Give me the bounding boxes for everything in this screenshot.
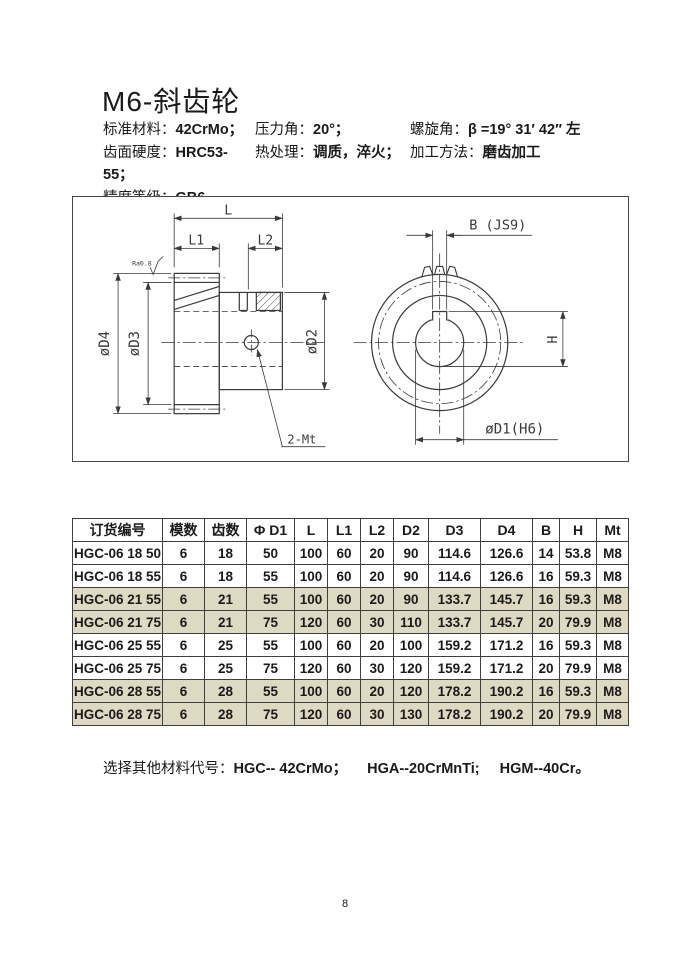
value-cell: 60 xyxy=(328,657,361,680)
dim-label-L1: L1 xyxy=(188,233,204,248)
value-cell: 55 xyxy=(247,565,295,588)
value-cell: 178.2 xyxy=(429,680,481,703)
spec-item-machining: 加工方法：磨齿加工 xyxy=(410,142,623,187)
column-header: L1 xyxy=(328,519,361,542)
technical-drawing: L L1 L2 øD4 øD3 øD2 2-Mt Ra0.8 xyxy=(72,196,629,462)
table-row: HGC-06 25 75625751206030120159.2171.2207… xyxy=(73,657,629,680)
value-cell: 90 xyxy=(394,588,429,611)
value-cell: 16 xyxy=(533,634,560,657)
gear-body-outline xyxy=(174,273,219,413)
table-body: HGC-06 18 5061850100602090114.6126.61453… xyxy=(73,542,629,726)
column-header: 订货编号 xyxy=(73,519,163,542)
order-code-cell: HGC-06 18 50 xyxy=(73,542,163,565)
value-cell: 60 xyxy=(328,611,361,634)
value-cell: 20 xyxy=(533,611,560,634)
front-view-dimensions xyxy=(407,230,568,444)
value-cell: M8 xyxy=(597,542,629,565)
value-cell: 133.7 xyxy=(429,611,481,634)
value-cell: 60 xyxy=(328,703,361,726)
column-header: D4 xyxy=(481,519,533,542)
value-cell: M8 xyxy=(597,611,629,634)
table-row: HGC-06 21 75621751206030110133.7145.7207… xyxy=(73,611,629,634)
column-header: L2 xyxy=(361,519,394,542)
value-cell: 59.3 xyxy=(560,588,597,611)
spec-value: 磨齿加工 xyxy=(483,145,541,161)
value-cell: 20 xyxy=(361,588,394,611)
order-code-cell: HGC-06 18 55 xyxy=(73,565,163,588)
value-cell: 100 xyxy=(295,565,328,588)
value-cell: 6 xyxy=(163,542,205,565)
value-cell: 18 xyxy=(205,542,247,565)
spec-label: 加工方法： xyxy=(410,145,483,161)
value-cell: 20 xyxy=(361,565,394,588)
column-header: B xyxy=(533,519,560,542)
value-cell: 114.6 xyxy=(429,542,481,565)
value-cell: 79.9 xyxy=(560,657,597,680)
column-header: H xyxy=(560,519,597,542)
order-code-cell: HGC-06 28 75 xyxy=(73,703,163,726)
value-cell: 50 xyxy=(247,542,295,565)
side-view-dimensions xyxy=(113,213,329,446)
value-cell: M8 xyxy=(597,634,629,657)
order-code-cell: HGC-06 25 55 xyxy=(73,634,163,657)
value-cell: 6 xyxy=(163,680,205,703)
value-cell: M8 xyxy=(597,703,629,726)
value-cell: 28 xyxy=(205,680,247,703)
spec-item-pressure-angle: 压力角：20°； xyxy=(255,119,410,142)
spec-value: 调质，淬火； xyxy=(313,145,400,161)
value-cell: 25 xyxy=(205,657,247,680)
table-header-row: 订货编号模数齿数Φ D1LL1L2D2D3D4BHMt xyxy=(73,519,629,542)
dim-label-B: B (JS9) xyxy=(469,217,526,233)
order-code-cell: HGC-06 28 55 xyxy=(73,680,163,703)
page-number: 8 xyxy=(0,898,690,910)
spec-item-heat-treatment: 热处理：调质，淬火； xyxy=(255,142,410,187)
order-code-cell: HGC-06 25 75 xyxy=(73,657,163,680)
value-cell: 75 xyxy=(247,703,295,726)
spec-row: 齿面硬度：HRC53-55； 热处理：调质，淬火； 加工方法：磨齿加工 xyxy=(103,142,623,187)
spec-row: 标准材料：42CrMo； 压力角：20°； 螺旋角：β =19° 31′ 42″… xyxy=(103,119,623,142)
value-cell: 145.7 xyxy=(481,611,533,634)
value-cell: 120 xyxy=(295,657,328,680)
value-cell: 20 xyxy=(533,703,560,726)
value-cell: 30 xyxy=(361,703,394,726)
value-cell: 114.6 xyxy=(429,565,481,588)
value-cell: 6 xyxy=(163,588,205,611)
value-cell: 59.3 xyxy=(560,634,597,657)
value-cell: 126.6 xyxy=(481,565,533,588)
dim-label-D2: øD2 xyxy=(304,329,320,354)
value-cell: 30 xyxy=(361,611,394,634)
column-header: Mt xyxy=(597,519,629,542)
page-title: M6-斜齿轮 xyxy=(102,80,240,120)
value-cell: 75 xyxy=(247,611,295,634)
spec-value: 20°； xyxy=(313,122,349,138)
value-cell: M8 xyxy=(597,565,629,588)
value-cell: 6 xyxy=(163,565,205,588)
value-cell: 100 xyxy=(295,588,328,611)
table-row: HGC-06 18 5561855100602090114.6126.61659… xyxy=(73,565,629,588)
column-header: D2 xyxy=(394,519,429,542)
dim-label-H: H xyxy=(546,336,561,344)
value-cell: 14 xyxy=(533,542,560,565)
value-cell: 20 xyxy=(361,680,394,703)
value-cell: 100 xyxy=(295,680,328,703)
value-cell: 190.2 xyxy=(481,680,533,703)
roughness-symbol xyxy=(150,256,163,274)
dim-label-D1: øD1(H6) xyxy=(485,422,544,438)
value-cell: 25 xyxy=(205,634,247,657)
value-cell: 145.7 xyxy=(481,588,533,611)
value-cell: 6 xyxy=(163,657,205,680)
value-cell: 55 xyxy=(247,634,295,657)
value-cell: 16 xyxy=(533,565,560,588)
material-code-item: HGC-- 42CrMo； xyxy=(234,761,348,777)
value-cell: 100 xyxy=(295,634,328,657)
value-cell: 60 xyxy=(328,542,361,565)
value-cell: 55 xyxy=(247,588,295,611)
value-cell: 60 xyxy=(328,565,361,588)
table-row: HGC-06 18 5061850100602090114.6126.61453… xyxy=(73,542,629,565)
side-view-labels: L L1 L2 øD4 øD3 øD2 2-Mt Ra0.8 xyxy=(97,203,320,446)
value-cell: 190.2 xyxy=(481,703,533,726)
spec-label: 标准材料： xyxy=(103,122,176,138)
value-cell: 20 xyxy=(361,542,394,565)
value-cell: 100 xyxy=(394,634,429,657)
dim-label-L2: L2 xyxy=(258,233,274,248)
column-header: 齿数 xyxy=(205,519,247,542)
value-cell: 120 xyxy=(295,703,328,726)
value-cell: 53.8 xyxy=(560,542,597,565)
spec-label: 热处理： xyxy=(255,145,313,161)
mt-leader-line xyxy=(257,350,282,447)
key-section-hatch xyxy=(256,292,280,310)
spec-value: 42CrMo； xyxy=(176,122,244,138)
value-cell: M8 xyxy=(597,588,629,611)
value-cell: 133.7 xyxy=(429,588,481,611)
spec-item-helix-angle: 螺旋角：β =19° 31′ 42″ 左 xyxy=(410,119,623,142)
value-cell: 18 xyxy=(205,565,247,588)
value-cell: 126.6 xyxy=(481,542,533,565)
value-cell: 21 xyxy=(205,611,247,634)
value-cell: M8 xyxy=(597,680,629,703)
column-header: Φ D1 xyxy=(247,519,295,542)
value-cell: 6 xyxy=(163,703,205,726)
table-row: HGC-06 28 75628751206030130178.2190.2207… xyxy=(73,703,629,726)
material-note-label: 选择其他材料代号： xyxy=(103,761,234,777)
value-cell: 59.3 xyxy=(560,565,597,588)
column-header: D3 xyxy=(429,519,481,542)
front-view-details xyxy=(354,253,526,433)
table-row: HGC-06 28 55628551006020120178.2190.2165… xyxy=(73,680,629,703)
value-cell: 159.2 xyxy=(429,657,481,680)
material-note: 选择其他材料代号：HGC-- 42CrMo；HGA--20CrMnTi;HGM-… xyxy=(103,757,610,778)
table-header: 订货编号模数齿数Φ D1LL1L2D2D3D4BHMt xyxy=(73,519,629,542)
value-cell: 100 xyxy=(295,542,328,565)
value-cell: 6 xyxy=(163,611,205,634)
value-cell: 171.2 xyxy=(481,634,533,657)
spec-value: β =19° 31′ 42″ 左 xyxy=(468,122,581,138)
gear-drawing-svg: L L1 L2 øD4 øD3 øD2 2-Mt Ra0.8 xyxy=(73,197,628,461)
value-cell: 60 xyxy=(328,634,361,657)
value-cell: M8 xyxy=(597,657,629,680)
table-row: HGC-06 21 5562155100602090133.7145.71659… xyxy=(73,588,629,611)
order-code-cell: HGC-06 21 75 xyxy=(73,611,163,634)
value-cell: 60 xyxy=(328,588,361,611)
value-cell: 171.2 xyxy=(481,657,533,680)
value-cell: 120 xyxy=(394,680,429,703)
value-cell: 75 xyxy=(247,657,295,680)
value-cell: 79.9 xyxy=(560,611,597,634)
document-page: M6-斜齿轮 标准材料：42CrMo； 压力角：20°； 螺旋角：β =19° … xyxy=(0,0,690,976)
spec-item-hardness: 齿面硬度：HRC53-55； xyxy=(103,142,255,187)
value-cell: 20 xyxy=(533,657,560,680)
value-cell: 28 xyxy=(205,703,247,726)
value-cell: 79.9 xyxy=(560,703,597,726)
order-code-cell: HGC-06 21 55 xyxy=(73,588,163,611)
value-cell: 20 xyxy=(361,634,394,657)
column-header: L xyxy=(295,519,328,542)
dim-label-D4: øD4 xyxy=(97,331,113,356)
helix-line xyxy=(174,295,219,309)
material-code-item: HGA--20CrMnTi; xyxy=(367,761,480,777)
value-cell: 55 xyxy=(247,680,295,703)
mt-label: 2-Mt xyxy=(287,433,316,447)
spec-label: 压力角： xyxy=(255,122,313,138)
value-cell: 16 xyxy=(533,588,560,611)
spec-item-material: 标准材料：42CrMo； xyxy=(103,119,255,142)
column-header: 模数 xyxy=(163,519,205,542)
product-table: 订货编号模数齿数Φ D1LL1L2D2D3D4BHMt HGC-06 18 50… xyxy=(72,518,629,726)
value-cell: 16 xyxy=(533,680,560,703)
value-cell: 21 xyxy=(205,588,247,611)
value-cell: 59.3 xyxy=(560,680,597,703)
value-cell: 60 xyxy=(328,680,361,703)
value-cell: 6 xyxy=(163,634,205,657)
value-cell: 159.2 xyxy=(429,634,481,657)
material-code-item: HGM--40Cr。 xyxy=(500,761,590,777)
dim-label-L: L xyxy=(224,203,232,218)
value-cell: 110 xyxy=(394,611,429,634)
table-row: HGC-06 25 55625551006020100159.2171.2165… xyxy=(73,634,629,657)
value-cell: 130 xyxy=(394,703,429,726)
value-cell: 120 xyxy=(295,611,328,634)
value-cell: 120 xyxy=(394,657,429,680)
dim-label-D3: øD3 xyxy=(127,331,143,356)
value-cell: 90 xyxy=(394,565,429,588)
spec-label: 齿面硬度： xyxy=(103,145,176,161)
helix-line xyxy=(174,286,219,300)
front-view-labels: B (JS9) H øD1(H6) xyxy=(469,217,561,437)
value-cell: 178.2 xyxy=(429,703,481,726)
side-section-view xyxy=(174,273,282,413)
value-cell: 90 xyxy=(394,542,429,565)
spec-label: 螺旋角： xyxy=(410,122,468,138)
roughness-label: Ra0.8 xyxy=(132,259,152,267)
value-cell: 30 xyxy=(361,657,394,680)
